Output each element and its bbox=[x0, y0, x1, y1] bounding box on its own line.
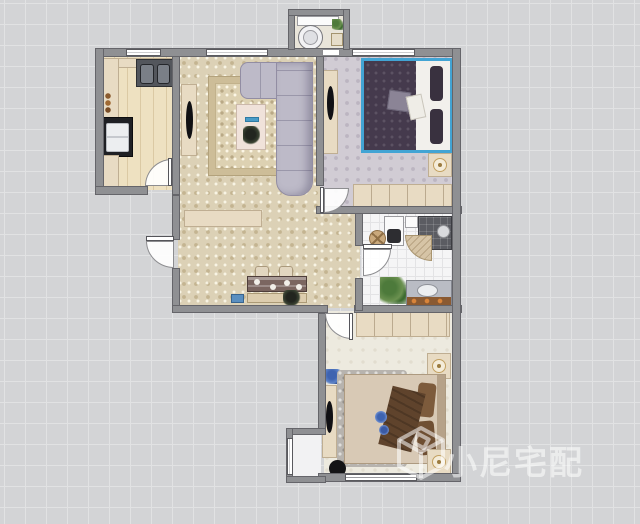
wall-cabinet-bath[interactable] bbox=[405, 216, 418, 228]
plate bbox=[284, 280, 290, 286]
wall-bath-left-lower bbox=[355, 278, 363, 311]
entry-door[interactable] bbox=[146, 236, 174, 241]
corner-sofa-main[interactable] bbox=[276, 62, 313, 196]
tv-master[interactable] bbox=[327, 86, 334, 120]
tv-second[interactable] bbox=[326, 401, 333, 433]
hallway-storage-box[interactable] bbox=[231, 294, 244, 303]
wall-left-kitchen bbox=[95, 48, 104, 195]
toilet[interactable] bbox=[384, 216, 404, 246]
wall-right bbox=[452, 48, 461, 482]
balcony-threshold[interactable] bbox=[322, 49, 340, 56]
coffee-table-plant[interactable] bbox=[243, 126, 260, 145]
bay-window-floor bbox=[291, 435, 321, 480]
master-bedroom-window[interactable] bbox=[352, 49, 415, 56]
remote-control[interactable] bbox=[245, 117, 259, 122]
dining-plant[interactable] bbox=[283, 290, 301, 306]
wall-bath-left-upper bbox=[355, 213, 363, 246]
tv-living[interactable] bbox=[186, 101, 193, 139]
watermark-text: 小尼宅配 bbox=[444, 436, 584, 484]
nightstand-master[interactable] bbox=[428, 153, 452, 177]
wall-kitchen-bottom bbox=[95, 186, 148, 195]
plate bbox=[270, 284, 276, 290]
sink-basin-left bbox=[140, 64, 154, 84]
bathroom-door[interactable] bbox=[363, 244, 392, 249]
wall-bath-bottom bbox=[354, 305, 462, 313]
vanity-front bbox=[407, 297, 451, 305]
bay-window[interactable] bbox=[287, 438, 293, 475]
shower-head bbox=[437, 225, 450, 238]
floorplan-canvas: 小尼宅配 bbox=[0, 0, 640, 524]
hallway-floor bbox=[320, 213, 360, 308]
wardrobe-master[interactable] bbox=[353, 184, 452, 207]
kitchen-door[interactable] bbox=[168, 158, 172, 186]
wall-balcony-right bbox=[343, 9, 350, 50]
table-lamp-master bbox=[433, 158, 447, 172]
second-bedroom-window[interactable] bbox=[345, 474, 417, 481]
stove-top bbox=[106, 123, 129, 152]
master-bedroom-door[interactable] bbox=[320, 187, 324, 213]
nightstand-second-bottom[interactable] bbox=[427, 449, 451, 475]
pillow bbox=[430, 66, 443, 101]
toilet-seat bbox=[387, 229, 401, 243]
wall-bay-bottom bbox=[286, 476, 326, 483]
entry-door-arc bbox=[146, 241, 174, 268]
plate bbox=[254, 279, 260, 285]
bathroom-plant[interactable] bbox=[380, 277, 407, 304]
master-bed-selected[interactable] bbox=[361, 58, 453, 153]
vanity-sink[interactable] bbox=[406, 280, 452, 306]
sideboard[interactable] bbox=[184, 210, 262, 227]
bed-flower bbox=[375, 411, 387, 423]
bed-flower bbox=[379, 425, 389, 435]
wall-hall-left-upper bbox=[172, 195, 180, 240]
second-bedroom-door[interactable] bbox=[349, 313, 353, 340]
living-room-window[interactable] bbox=[206, 49, 268, 56]
table-lamp-second-top bbox=[432, 359, 446, 373]
washing-machine[interactable] bbox=[298, 25, 323, 50]
kitchen-stove[interactable] bbox=[101, 117, 133, 157]
washer-drum bbox=[303, 30, 318, 45]
wall-balcony-top bbox=[288, 9, 350, 16]
balcony-storage-box[interactable] bbox=[331, 33, 343, 46]
kitchen-double-sink[interactable] bbox=[136, 59, 174, 87]
table-lamp-second-bottom bbox=[432, 455, 446, 469]
kitchen-window[interactable] bbox=[126, 49, 161, 56]
wall-master-left bbox=[316, 56, 324, 186]
balcony-plant[interactable] bbox=[332, 19, 343, 30]
wardrobe-second[interactable] bbox=[356, 311, 450, 337]
kitchen-bottles[interactable] bbox=[104, 93, 112, 113]
wall-second-left bbox=[318, 313, 326, 433]
wall-hall-bottom bbox=[172, 305, 328, 313]
sink-basin-right bbox=[157, 64, 170, 84]
wall-kitchen-right bbox=[172, 56, 180, 195]
pillow bbox=[430, 109, 443, 144]
sink-bowl bbox=[417, 284, 438, 297]
